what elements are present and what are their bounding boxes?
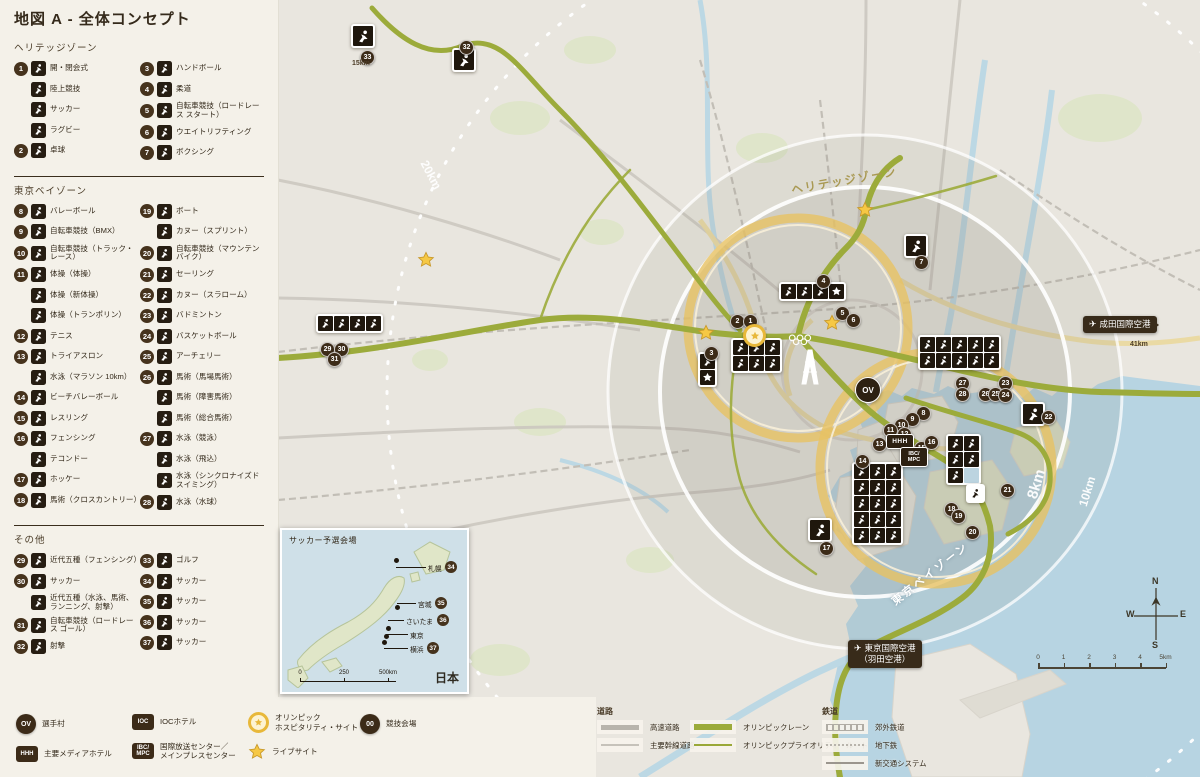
legend-line-swatch	[822, 738, 868, 752]
venue-sport-label: 自転車競技（トラック・レース）	[50, 245, 140, 262]
legend-row: カヌー（スプリント）	[140, 224, 266, 239]
venue-icon-cluster	[904, 234, 928, 258]
sport-pictogram-icon	[31, 452, 46, 467]
sport-pictogram-icon	[906, 236, 926, 256]
sport-pictogram-icon	[31, 224, 46, 239]
sport-pictogram-icon	[886, 480, 901, 495]
ibc-icon: IBC/ MPC	[132, 743, 154, 759]
sport-pictogram-icon	[157, 452, 172, 467]
sport-pictogram-icon	[31, 618, 46, 633]
venue-number-badge: 36	[140, 615, 154, 629]
venue-sport-label: 陸上競技	[50, 85, 140, 94]
venue-number-badge	[14, 82, 28, 96]
legend-row: 29近代五種（フェンシング）	[14, 553, 140, 568]
venue-sport-label: ハンドボール	[176, 64, 266, 73]
inset-leader-line	[397, 603, 416, 604]
legend-row: テコンドー	[14, 452, 140, 467]
legend-row: 3ハンドボール	[140, 61, 266, 76]
venue-sport-label: 馬術（クロスカントリー）	[50, 496, 140, 505]
sport-pictogram-icon	[31, 267, 46, 282]
venue-sport-label: フェンシング	[50, 434, 140, 443]
sport-pictogram-icon	[854, 528, 869, 543]
venue-sport-label: サッカー	[50, 577, 140, 586]
venue-number-badge: 5	[140, 104, 154, 118]
inset-leader-line	[388, 620, 404, 621]
sport-pictogram-icon	[31, 329, 46, 344]
venue-number-badge: 17	[14, 473, 28, 487]
sport-pictogram-icon	[31, 82, 46, 97]
scale-tick	[1064, 663, 1066, 668]
venue-sport-label: バスケットボール	[176, 332, 266, 341]
suburban-line	[826, 724, 864, 731]
venue-sport-label: 射撃	[50, 642, 140, 651]
scale-tick-label: 1	[1062, 654, 1066, 661]
legend-line-row: 地下鉄	[822, 738, 897, 752]
venue-sport-label: レスリング	[50, 414, 140, 423]
sport-pictogram-icon	[886, 512, 901, 527]
venue-sport-label: サッカー	[176, 618, 266, 627]
haneda-airport-label: ✈東京国際空港 （羽田空港）	[848, 640, 922, 668]
sport-pictogram-icon	[31, 102, 46, 117]
inset-city-dot	[382, 640, 387, 645]
inset-leader-line	[384, 648, 408, 649]
sport-pictogram-icon	[31, 472, 46, 487]
scale-tick	[1140, 663, 1142, 668]
map-venue-badge: 24	[998, 388, 1013, 403]
legend-section-header: 東京ベイゾーン	[14, 183, 266, 197]
legend-column: 3ハンドボール4柔道5自転車競技（ロードレース スタート）6ウエイトリフティング…	[140, 61, 266, 166]
legend-row: 10自転車競技（トラック・レース）	[14, 245, 140, 262]
map-venue-badge: 4	[816, 274, 831, 289]
scale-tick	[1115, 663, 1117, 668]
venue-number-badge: 13	[14, 350, 28, 364]
venue-number-badge	[14, 103, 28, 117]
sport-pictogram-icon	[968, 353, 983, 368]
legend-row: 22カヌー（スラローム）	[140, 288, 266, 303]
sport-pictogram-icon	[810, 520, 830, 540]
sport-pictogram-icon	[366, 316, 381, 331]
venue-number-badge: 6	[140, 125, 154, 139]
compass-e: E	[1180, 609, 1186, 619]
venue-sport-label: 自転車競技（マウンテンバイク）	[176, 245, 266, 262]
legend-divider	[14, 176, 264, 177]
sport-pictogram-icon	[948, 452, 963, 467]
inset-city-label: 札幌	[428, 563, 442, 573]
venue-sport-label: サッカー	[50, 105, 140, 114]
sport-pictogram-icon	[157, 370, 172, 385]
legend-line-row: 郊外鉄道	[822, 720, 905, 734]
venue-number-badge: 16	[14, 432, 28, 446]
map-text-label: 41km	[1130, 341, 1148, 348]
compass-w: W	[1126, 609, 1135, 619]
venue-icon-cluster	[852, 462, 903, 545]
footer-item-label: オリンピック ホスピタリティ・サイト	[275, 713, 358, 731]
venue-number-badge: 28	[140, 495, 154, 509]
footer-item-label: 国際放送センター／ メインプレスセンター	[160, 742, 236, 760]
inset-scale-tick	[388, 678, 389, 682]
venue-sport-label: テニス	[50, 332, 140, 341]
inset-city-badge: 37	[427, 642, 439, 654]
legend-row: 20自転車競技（マウンテンバイク）	[140, 245, 266, 262]
venue-icon-cluster	[918, 335, 1001, 370]
inset-leader-line	[386, 634, 408, 635]
legend-row: 28水泳（水球）	[140, 495, 266, 510]
scale-tick-label: 0	[1036, 654, 1040, 661]
venue-sport-label: ビーチバレーボール	[50, 393, 140, 402]
sport-pictogram-icon	[870, 464, 885, 479]
sport-pictogram-icon	[964, 452, 979, 467]
map-text-label: 15km	[352, 60, 370, 67]
legend-row: 水泳（マラソン 10km）	[14, 370, 140, 385]
sport-pictogram-icon	[886, 464, 901, 479]
legend-row: 水泳（飛込）	[140, 452, 266, 467]
legend-row: 9自転車競技（BMX）	[14, 224, 140, 239]
legend-line-row: 主要幹線道路	[597, 738, 694, 752]
venue-sport-label: アーチェリー	[176, 352, 266, 361]
venue-number-badge: 12	[14, 329, 28, 343]
inset-japan-map: サッカー予選会場 日本 札幌34宮城35さいたま36東京横浜37 0250500…	[280, 528, 469, 694]
legend-line-row: オリンピックレーン	[690, 720, 809, 734]
venue-number-badge	[140, 391, 154, 405]
ioc-icon: IOC	[132, 714, 154, 730]
venue-number-badge: 24	[140, 329, 154, 343]
sport-pictogram-icon	[952, 337, 967, 352]
inset-city-badge: 36	[437, 614, 449, 626]
inset-city-badge: 35	[435, 597, 447, 609]
venue-sport-label: 水泳（マラソン 10km）	[50, 373, 140, 382]
legend-row: 32射撃	[14, 639, 140, 654]
legend-row: 34サッカー	[140, 574, 266, 589]
legend-column: 33ゴルフ34サッカー35サッカー36サッカー37サッカー	[140, 553, 266, 660]
legend-row: 18馬術（クロスカントリー）	[14, 493, 140, 508]
inset-country-label: 日本	[435, 669, 459, 686]
sport-pictogram-icon	[886, 528, 901, 543]
inset-city-dot	[394, 558, 399, 563]
sport-pictogram-icon	[870, 512, 885, 527]
venue-sport-label: ゴルフ	[176, 556, 266, 565]
sport-pictogram-icon	[854, 480, 869, 495]
legend-divider	[14, 525, 264, 526]
venue-number-badge: 35	[140, 595, 154, 609]
legend-section-columns: 1開・閉会式陸上競技サッカーラグビー2卓球3ハンドボール4柔道5自転車競技（ロー…	[14, 61, 266, 166]
venue-number-badge: 33	[140, 554, 154, 568]
legend-row: 近代五種（水泳、馬術、ランニング、射撃）	[14, 594, 140, 611]
map-venue-badge: 13	[872, 437, 887, 452]
legend-line-row: 新交通システム	[822, 756, 927, 770]
live-site-star-icon	[856, 201, 874, 219]
legend-row: 11体操（体操）	[14, 267, 140, 282]
venue-sport-label: 開・閉会式	[50, 64, 140, 73]
sport-pictogram-icon	[157, 125, 172, 140]
sport-pictogram-icon	[157, 82, 172, 97]
roads-legend-header: 道路	[597, 706, 613, 717]
venue-sport-label: 馬術（馬場馬術）	[176, 373, 266, 382]
sport-pictogram-icon	[31, 370, 46, 385]
venue-sport-label: ラグビー	[50, 126, 140, 135]
venue-number-badge: 21	[140, 268, 154, 282]
scale-tick-label: 3	[1113, 654, 1117, 661]
expressway-line	[601, 725, 639, 730]
olympic-concept-map: 地図 A - 全体コンセプト ヘリテッジゾーン1開・閉会式陸上競技サッカーラグビ…	[0, 0, 1200, 777]
live-site-star-icon	[248, 743, 266, 761]
hhh-icon: HHH	[16, 746, 38, 762]
venue-number-badge: 34	[140, 574, 154, 588]
sport-pictogram-icon	[157, 431, 172, 446]
railways-legend-header: 鉄道	[822, 706, 838, 717]
legend-row: 27水泳（競泳）	[140, 431, 266, 446]
venue-number-badge: 18	[14, 493, 28, 507]
map-venue-badge: 20	[965, 525, 980, 540]
sport-pictogram-icon	[157, 553, 172, 568]
venue-number-badge	[140, 225, 154, 239]
map-venue-badge: 6	[846, 313, 861, 328]
venue-number-badge	[140, 411, 154, 425]
sport-pictogram-icon	[157, 267, 172, 282]
venue-number-badge: 3	[140, 62, 154, 76]
olympic-village-marker: OV	[855, 377, 881, 403]
inset-city-label: さいたま	[406, 616, 433, 626]
map-venue-badge: 31	[327, 352, 342, 367]
legend-row: 8バレーボール	[14, 204, 140, 219]
venue-sport-label: 馬術（総合馬術）	[176, 414, 266, 423]
legend-row: 23バドミントン	[140, 308, 266, 323]
scale-tick	[1038, 663, 1040, 668]
sport-pictogram-icon	[157, 204, 172, 219]
venue-icon-cluster	[351, 24, 375, 48]
footer-item-ov: OV選手村	[16, 714, 65, 734]
footer-item-label: 選手村	[42, 719, 65, 728]
inset-city-label: 横浜	[410, 644, 424, 654]
map-venue-badge: 17	[819, 541, 834, 556]
legend-row: 7ボクシング	[140, 145, 266, 160]
legend-column: 1開・閉会式陸上競技サッカーラグビー2卓球	[14, 61, 140, 166]
sport-pictogram-icon	[157, 308, 172, 323]
sport-pictogram-icon	[984, 337, 999, 352]
venue-number-badge: 37	[140, 636, 154, 650]
venue-sport-label: 水泳（水球）	[176, 498, 266, 507]
legend-row: 21セーリング	[140, 267, 266, 282]
legend-column: 19ボートカヌー（スプリント）20自転車競技（マウンテンバイク）21セーリング2…	[140, 204, 266, 516]
sport-pictogram-icon	[157, 615, 172, 630]
venue-legend: ヘリテッジゾーン1開・閉会式陸上競技サッカーラグビー2卓球3ハンドボール4柔道5…	[14, 34, 266, 660]
inset-scale-label: 250	[339, 670, 349, 676]
legend-column: 8バレーボール9自転車競技（BMX）10自転車競技（トラック・レース）11体操（…	[14, 204, 140, 516]
sport-pictogram-icon	[948, 436, 963, 451]
venue-sport-label: 自転車競技（BMX）	[50, 227, 140, 236]
legend-row: 6ウエイトリフティング	[140, 125, 266, 140]
venue-sport-label: 自転車競技（ロードレース ゴール）	[50, 617, 140, 634]
sport-pictogram-icon	[350, 316, 365, 331]
sport-pictogram-icon	[765, 340, 780, 355]
footer-item-livesite: ライブサイト	[248, 743, 318, 761]
sport-pictogram-icon	[157, 145, 172, 160]
scale-tick-label: 2	[1087, 654, 1091, 661]
sport-pictogram-icon	[920, 337, 935, 352]
venue-number-badge: 31	[14, 618, 28, 632]
sport-pictogram-icon	[31, 595, 46, 610]
sport-pictogram-icon	[157, 288, 172, 303]
sport-pictogram-icon	[157, 635, 172, 650]
legend-row: 体操（トランポリン）	[14, 308, 140, 323]
venue-number-badge	[14, 370, 28, 384]
legend-line-swatch	[822, 720, 868, 734]
airplane-icon: ✈	[854, 643, 862, 653]
sport-pictogram-icon	[920, 353, 935, 368]
venue-number-badge: 29	[14, 554, 28, 568]
legend-line-label: 主要幹線道路	[650, 740, 694, 751]
venue-number-badge: 30	[14, 574, 28, 588]
venue-sport-label: サッカー	[176, 597, 266, 606]
map-venue-badge: 21	[1000, 483, 1015, 498]
footer-item-label: ライブサイト	[272, 747, 318, 756]
legend-row: 13トライアスロン	[14, 349, 140, 364]
inset-scale-tick	[344, 678, 345, 682]
venue-icon-cluster	[946, 434, 981, 485]
footer-item-ibc: IBC/ MPC国際放送センター／ メインプレスセンター	[132, 742, 236, 760]
venue-number-badge: 20	[140, 246, 154, 260]
ibc-mpc-marker: IBC/ MPC	[900, 447, 928, 467]
sport-pictogram-icon	[733, 356, 748, 371]
map-venue-badge: 14	[855, 454, 870, 469]
legend-line-label: 新交通システム	[875, 758, 927, 769]
page-title: 地図 A - 全体コンセプト	[14, 8, 191, 29]
venue-sport-label: ボート	[176, 207, 266, 216]
badge00-icon: 00	[360, 714, 380, 734]
scale-tick	[1166, 663, 1168, 668]
compass-s: S	[1152, 640, 1158, 650]
sport-pictogram-icon	[31, 553, 46, 568]
transit-line	[826, 762, 864, 764]
legend-line-swatch	[822, 756, 868, 770]
sport-pictogram-icon	[936, 353, 951, 368]
sport-pictogram-icon	[31, 308, 46, 323]
venue-sport-label: 水泳（飛込）	[176, 455, 266, 464]
sport-pictogram-icon	[829, 284, 844, 299]
sport-pictogram-icon	[334, 316, 349, 331]
sport-pictogram-icon	[781, 284, 796, 299]
legend-row: 馬術（障害馬術）	[140, 390, 266, 405]
hospitality-site-icon	[248, 712, 269, 733]
legend-line-label: 郊外鉄道	[875, 722, 905, 733]
sport-pictogram-icon	[157, 349, 172, 364]
legend-row: 16フェンシング	[14, 431, 140, 446]
footer-band	[0, 697, 596, 777]
sport-pictogram-icon	[157, 390, 172, 405]
venue-icon-cluster	[779, 282, 846, 301]
venue-sport-label: ホッケー	[50, 475, 140, 484]
legend-row: 14ビーチバレーボール	[14, 390, 140, 405]
legend-section-header: ヘリテッジゾーン	[14, 40, 266, 54]
venue-sport-label: テコンドー	[50, 455, 140, 464]
venue-sport-label: サッカー	[176, 577, 266, 586]
sport-pictogram-icon	[157, 224, 172, 239]
legend-line-swatch	[597, 738, 643, 752]
sport-pictogram-icon	[31, 204, 46, 219]
legend-row: サッカー	[14, 102, 140, 117]
venue-number-badge: 11	[14, 268, 28, 282]
sport-pictogram-icon	[854, 512, 869, 527]
legend-row: 33ゴルフ	[140, 553, 266, 568]
sport-pictogram-icon	[31, 493, 46, 508]
scale-tick-label: 4	[1138, 654, 1142, 661]
inset-scalebar: 0250500km	[300, 681, 396, 682]
sport-pictogram-icon	[31, 288, 46, 303]
sport-pictogram-icon	[936, 337, 951, 352]
venue-icon-cluster	[316, 314, 383, 333]
legend-row: 31自転車競技（ロードレース ゴール）	[14, 617, 140, 634]
venue-sport-label: 卓球	[50, 146, 140, 155]
subway-line	[826, 744, 864, 746]
legend-section-columns: 29近代五種（フェンシング）30サッカー近代五種（水泳、馬術、ランニング、射撃）…	[14, 553, 266, 660]
venue-number-badge	[14, 309, 28, 323]
sport-pictogram-icon	[31, 61, 46, 76]
legend-row: 体操（新体操）	[14, 288, 140, 303]
airplane-icon: ✈	[1089, 319, 1097, 329]
inset-scale-tick	[300, 678, 301, 682]
venue-number-badge	[140, 452, 154, 466]
sport-pictogram-icon	[157, 411, 172, 426]
legend-line-swatch	[690, 720, 736, 734]
venue-number-badge	[140, 474, 154, 488]
sport-pictogram-icon	[31, 349, 46, 364]
inset-scale-label: 0	[298, 670, 301, 676]
venue-sport-label: 体操（新体操）	[50, 291, 140, 300]
venue-number-badge: 22	[140, 288, 154, 302]
venue-number-badge: 9	[14, 225, 28, 239]
sport-pictogram-icon	[31, 411, 46, 426]
venue-icon-cluster	[966, 484, 985, 503]
inset-city-label: 東京	[410, 630, 424, 640]
map-venue-badge: 28	[955, 387, 970, 402]
sport-pictogram-icon	[700, 370, 715, 385]
footer-item-ioc: IOCIOCホテル	[132, 714, 196, 730]
venue-number-badge	[14, 596, 28, 610]
venue-sport-label: 水泳（競泳）	[176, 434, 266, 443]
sport-pictogram-icon	[318, 316, 333, 331]
venue-number-badge	[14, 288, 28, 302]
venue-sport-label: 近代五種（フェンシング）	[50, 556, 140, 565]
legend-row: 1開・閉会式	[14, 61, 140, 76]
inset-city-dot	[395, 605, 400, 610]
sport-pictogram-icon	[870, 528, 885, 543]
legend-row: 24バスケットボール	[140, 329, 266, 344]
venue-sport-label: 体操（体操）	[50, 270, 140, 279]
legend-row: 水泳（シンクロナイズドスイミング）	[140, 472, 266, 489]
legend-column: 29近代五種（フェンシング）30サッカー近代五種（水泳、馬術、ランニング、射撃）…	[14, 553, 140, 660]
sport-pictogram-icon	[31, 390, 46, 405]
venue-number-badge: 15	[14, 411, 28, 425]
sport-pictogram-icon	[765, 356, 780, 371]
venue-number-badge: 25	[140, 350, 154, 364]
venue-number-badge: 2	[14, 144, 28, 158]
sport-pictogram-icon	[948, 468, 963, 483]
legend-section-columns: 8バレーボール9自転車競技（BMX）10自転車競技（トラック・レース）11体操（…	[14, 204, 266, 516]
scale-tick-label: 5km	[1159, 654, 1171, 661]
sport-pictogram-icon	[984, 353, 999, 368]
sport-pictogram-icon	[886, 496, 901, 511]
sport-pictogram-icon	[157, 103, 172, 118]
inset-city-label: 宮城	[418, 599, 432, 609]
sport-pictogram-icon	[157, 574, 172, 589]
venue-sport-label: カヌー（スラローム）	[176, 291, 266, 300]
map-venue-badge: 32	[459, 40, 474, 55]
legend-row: 5自転車競技（ロードレース スタート）	[140, 102, 266, 119]
venue-sport-label: セーリング	[176, 270, 266, 279]
legend-line-swatch	[690, 738, 736, 752]
venue-number-badge: 7	[140, 146, 154, 160]
legend-section-header: その他	[14, 532, 266, 546]
sport-pictogram-icon	[749, 356, 764, 371]
